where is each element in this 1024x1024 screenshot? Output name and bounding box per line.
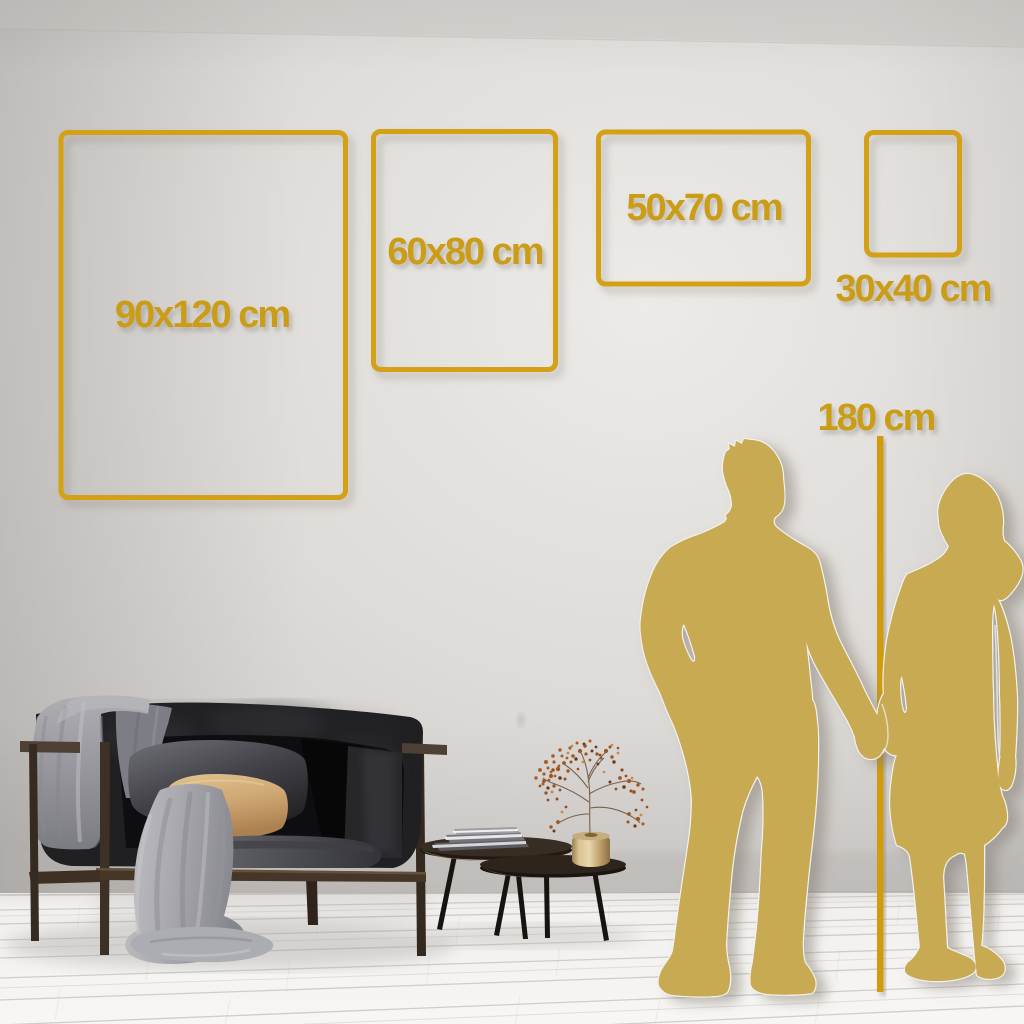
svg-text:90x120 cm: 90x120 cm: [115, 294, 289, 336]
svg-text:50x70 cm: 50x70 cm: [626, 187, 781, 229]
svg-text:30x40 cm: 30x40 cm: [835, 268, 990, 310]
svg-text:60x80 cm: 60x80 cm: [387, 231, 542, 273]
svg-text:180 cm: 180 cm: [818, 397, 935, 439]
